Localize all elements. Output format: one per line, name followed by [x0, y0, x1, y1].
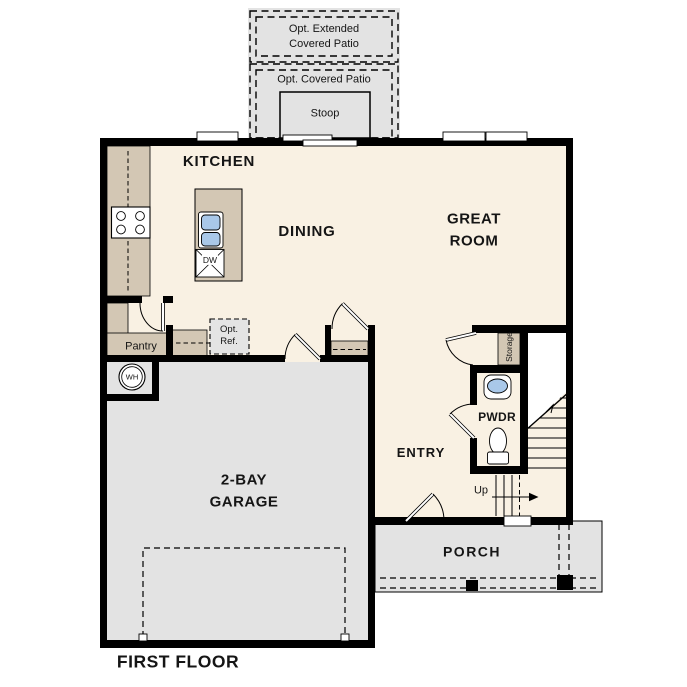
floorplan: KITCHEN DINING GREAT ROOM 2-BAY GARAGE E… — [0, 0, 687, 687]
kitchen-window — [197, 132, 238, 141]
sliding-door-panel-b — [303, 140, 357, 146]
porch-post — [466, 580, 478, 591]
stove-icon — [112, 207, 151, 238]
garage-floor — [107, 362, 368, 640]
greatroom-window-b — [486, 132, 527, 141]
floorplan-drawing — [0, 0, 687, 687]
optional-refrigerator-box — [210, 319, 249, 354]
greatroom-window-a — [443, 132, 485, 141]
landing-window — [504, 516, 531, 526]
pantry-shelf-bottom — [107, 333, 167, 356]
toilet-icon — [490, 428, 507, 454]
porch-post — [557, 575, 573, 590]
storage-shelf — [498, 333, 520, 365]
water-heater-icon — [119, 364, 145, 390]
patio-areas — [248, 8, 400, 138]
stoop-outline — [280, 92, 370, 138]
